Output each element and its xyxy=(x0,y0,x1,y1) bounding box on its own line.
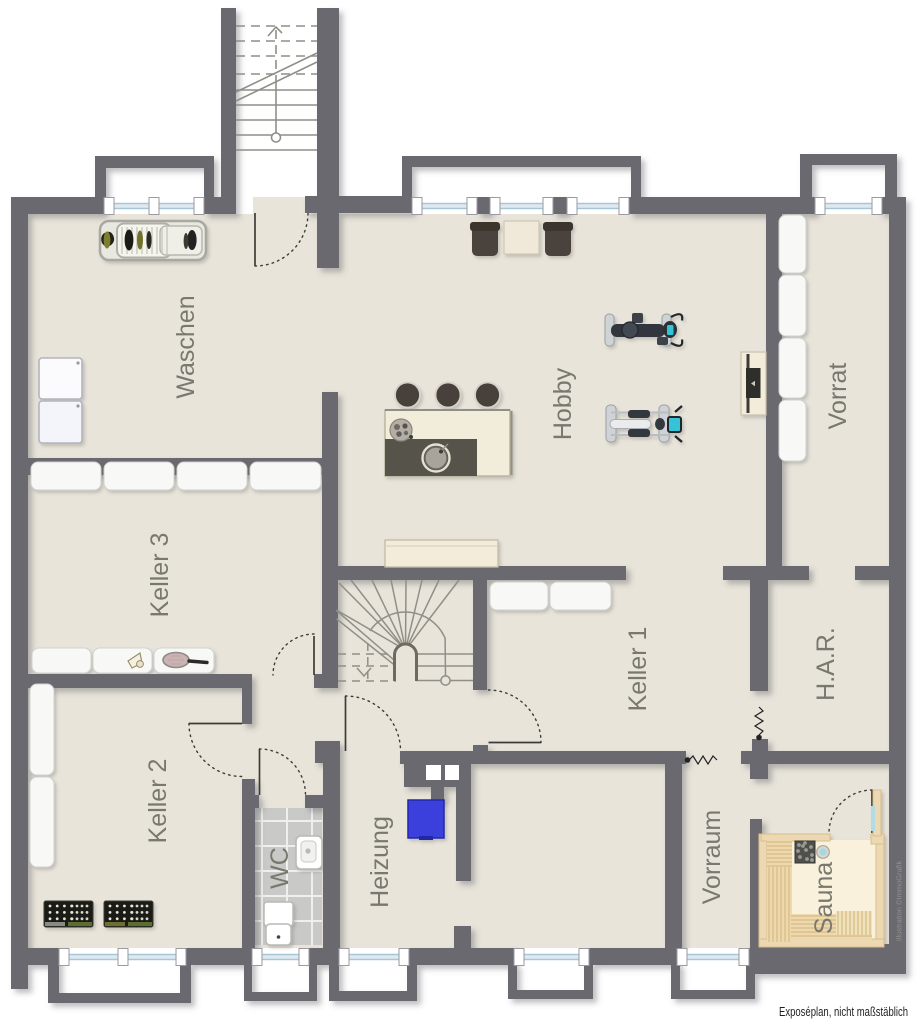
svg-text:Keller 2: Keller 2 xyxy=(144,759,172,844)
svg-text:Vorrat: Vorrat xyxy=(824,363,852,430)
svg-text:Heizung: Heizung xyxy=(366,816,394,908)
svg-text:Keller 1: Keller 1 xyxy=(624,627,652,712)
svg-text:Waschen: Waschen xyxy=(172,295,200,398)
svg-text:Illustration ©ImmoGrafik: Illustration ©ImmoGrafik xyxy=(895,860,904,941)
svg-text:Hobby: Hobby xyxy=(549,367,577,440)
svg-text:WC: WC xyxy=(266,847,294,889)
svg-text:Sauna: Sauna xyxy=(810,862,838,934)
svg-text:H.A.R.: H.A.R. xyxy=(812,627,840,701)
svg-text:Keller 3: Keller 3 xyxy=(146,533,174,618)
svg-text:Exposéplan, nicht maßstäblich: Exposéplan, nicht maßstäblich xyxy=(779,1004,908,1019)
svg-text:Vorraum: Vorraum xyxy=(698,810,726,904)
